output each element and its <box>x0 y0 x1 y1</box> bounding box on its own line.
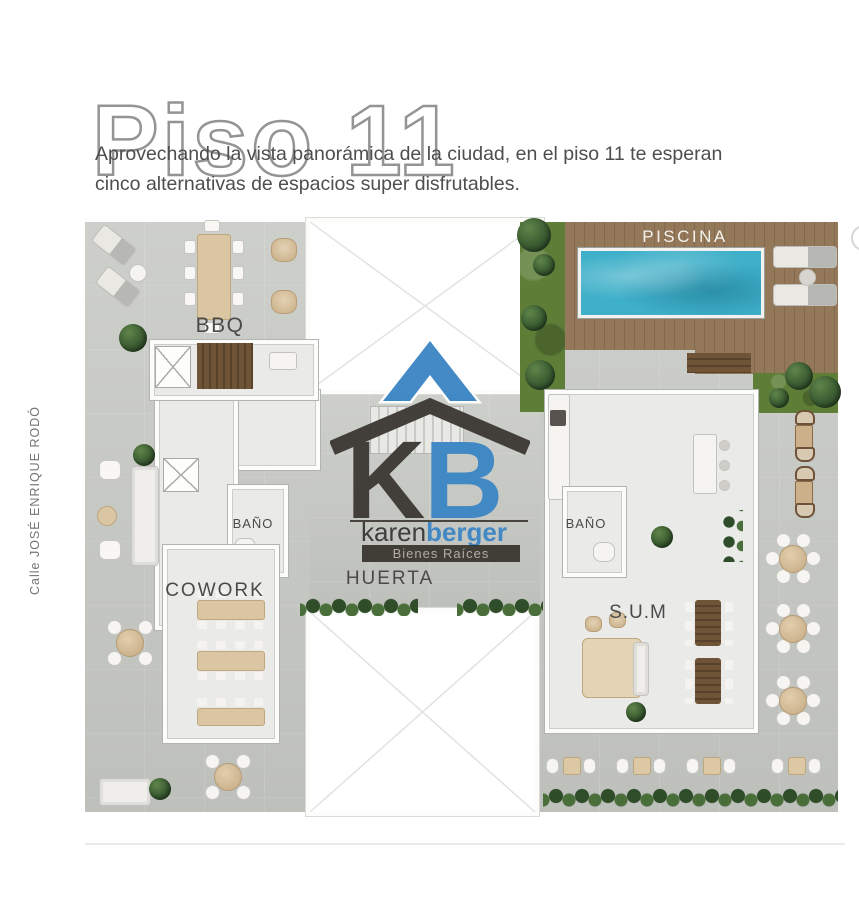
bbq-dining-table <box>197 234 231 320</box>
coffee-table <box>97 506 117 526</box>
subtitle-line-1: Aprovechando la vista panorámica de la c… <box>95 143 722 165</box>
round-table <box>214 763 242 791</box>
elevator-box <box>163 458 199 492</box>
chair <box>653 758 666 774</box>
kitchen-island <box>693 434 717 494</box>
brand-name-second: berger <box>426 517 507 547</box>
chair <box>765 621 780 636</box>
indoor-plant <box>651 526 673 548</box>
desk-chairs <box>197 621 263 629</box>
dining-chair <box>232 266 244 280</box>
chair <box>806 621 821 636</box>
chair <box>806 551 821 566</box>
dining-chair <box>184 292 196 306</box>
dining-chairs <box>685 660 693 704</box>
bathtub <box>593 542 615 562</box>
desk-chairs <box>197 698 263 706</box>
chair <box>795 503 815 518</box>
subtitle-line-2: cinco alternativas de espacios super dis… <box>95 173 520 195</box>
chair <box>546 758 559 774</box>
boundary-hedge <box>543 782 838 808</box>
chair <box>795 447 815 462</box>
karenberger-logo: K B karenberger Bienes Raíces <box>330 335 530 563</box>
huerta-planter <box>300 592 418 616</box>
floorplan-page: Piso 11 Aprovechando la vista panorámica… <box>0 0 859 900</box>
sofa <box>131 466 159 566</box>
chair <box>686 758 699 774</box>
bistro-table-set <box>793 410 813 462</box>
pool-side-table <box>799 269 816 286</box>
cowork-desk <box>197 651 265 671</box>
page-subtitle: Aprovechando la vista panorámica de la c… <box>95 139 722 199</box>
chair <box>616 758 629 774</box>
cowork-desk <box>197 708 265 726</box>
garden-bush <box>521 305 547 331</box>
dining-chair <box>232 240 244 254</box>
round-table <box>116 629 144 657</box>
bar-stool <box>719 440 730 451</box>
plan-bottom-edge <box>85 843 845 845</box>
bathroom-right-room <box>563 487 626 577</box>
round-table <box>779 687 807 715</box>
table <box>563 757 581 775</box>
chair <box>795 410 815 425</box>
bistro-table-set <box>793 466 813 518</box>
sofa <box>99 778 151 806</box>
palm-plant <box>785 362 813 390</box>
cowork-desk <box>197 600 265 620</box>
bbq-sink <box>269 352 297 370</box>
chair <box>771 758 784 774</box>
round-table-set <box>101 614 157 670</box>
pool-lounger <box>773 246 837 268</box>
room-label-cowork: COWORK <box>165 580 265 602</box>
table <box>703 757 721 775</box>
round-table <box>779 545 807 573</box>
bbq-counter-wood <box>197 343 253 389</box>
round-table-set <box>764 672 820 728</box>
brand-tagline: Bienes Raíces <box>393 546 490 561</box>
wall-planter <box>719 510 743 562</box>
logo-chevron-icon <box>383 341 477 401</box>
round-table-set <box>199 748 255 804</box>
pool-lounger <box>773 284 837 306</box>
planter-plant <box>149 778 171 800</box>
deck-stairs <box>687 353 751 373</box>
chair <box>583 758 596 774</box>
table <box>788 757 806 775</box>
void-courtyard-bottom <box>310 612 535 812</box>
chair <box>795 466 815 481</box>
dining-chair <box>184 240 196 254</box>
sum-dining-table <box>695 600 721 646</box>
room-label-bano-right: BAÑO <box>551 516 621 531</box>
chair <box>808 758 821 774</box>
round-table <box>779 615 807 643</box>
palm-plant <box>809 376 841 408</box>
round-table-set <box>764 600 820 656</box>
table <box>633 757 651 775</box>
desk-chairs <box>197 672 263 680</box>
cafe-table-set <box>546 756 596 774</box>
planter-plant <box>133 444 155 466</box>
palm-plant <box>517 218 551 252</box>
dining-chair <box>184 266 196 280</box>
side-table <box>129 264 147 282</box>
bbq-grill-box <box>155 346 191 388</box>
chair <box>806 693 821 708</box>
corridor-room-top <box>228 390 320 470</box>
room-label-bano-left: BAÑO <box>218 516 288 531</box>
chair <box>236 785 251 800</box>
garden-bush <box>533 254 555 276</box>
armchair <box>271 238 297 262</box>
room-label-sum: S.U.M <box>588 602 688 624</box>
chair <box>138 651 153 666</box>
room-label-bbq: BBQ <box>180 314 260 338</box>
sofa <box>633 642 649 696</box>
table <box>795 425 813 449</box>
table <box>795 481 813 505</box>
cafe-table-set <box>686 756 736 774</box>
sum-dining-table <box>695 658 721 704</box>
round-table-set <box>764 530 820 586</box>
desk-chairs <box>197 641 263 649</box>
chair <box>765 551 780 566</box>
cafe-table-set <box>616 756 666 774</box>
swimming-pool <box>578 248 764 318</box>
chair <box>723 758 736 774</box>
street-label: Calle JOSÉ ENRIQUE RODÓ <box>28 406 42 595</box>
huerta-planter <box>457 592 543 616</box>
page-edge-circle <box>851 225 859 251</box>
dining-chair <box>204 220 220 232</box>
dining-chair <box>232 292 244 306</box>
indoor-plant <box>626 702 646 722</box>
garden-bush <box>769 388 789 408</box>
stove <box>550 410 566 426</box>
svg-text:karenberger: karenberger <box>361 517 507 547</box>
bar-stool <box>719 460 730 471</box>
dining-chairs <box>725 602 733 646</box>
armchair <box>99 460 121 480</box>
planter-plant <box>119 324 147 352</box>
armchair <box>99 540 121 560</box>
room-label-piscina: PISCINA <box>605 227 765 247</box>
room-label-huerta: HUERTA <box>330 568 450 590</box>
dining-chairs <box>725 660 733 704</box>
brand-name-first: karen <box>361 517 426 547</box>
cafe-table-set <box>771 756 821 774</box>
armchair <box>271 290 297 314</box>
bar-stool <box>719 480 730 491</box>
chair <box>765 693 780 708</box>
